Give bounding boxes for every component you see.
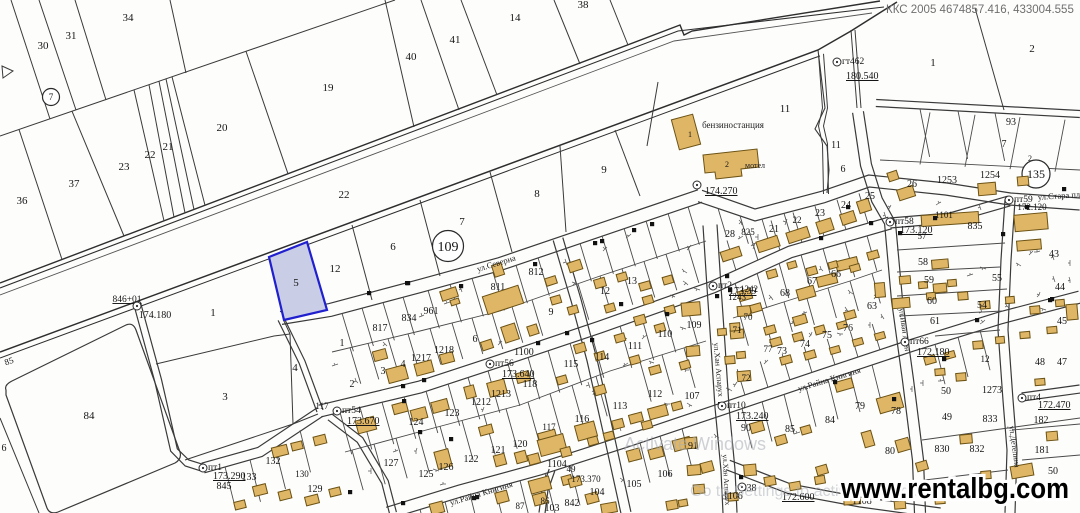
svg-text:4: 4 [401,359,406,370]
svg-text:25: 25 [865,191,875,202]
svg-text:113: 113 [613,401,628,412]
svg-text:22: 22 [793,215,802,225]
svg-text:30: 30 [38,40,50,52]
svg-text:58: 58 [918,257,928,268]
svg-text:130: 130 [295,469,309,479]
svg-text:1104: 1104 [547,459,567,470]
svg-text:116: 116 [575,414,590,425]
svg-text:22: 22 [339,189,350,201]
svg-text:173.240: 173.240 [736,411,769,422]
svg-text:86: 86 [541,496,551,506]
svg-text:79: 79 [855,401,865,412]
svg-text:1100: 1100 [514,347,534,358]
svg-text:109: 109 [687,320,702,331]
svg-text:26: 26 [907,179,917,190]
svg-text:961: 961 [424,306,439,317]
svg-text:54: 54 [977,300,987,311]
svg-text:84: 84 [825,415,835,426]
svg-text:842: 842 [565,498,580,509]
svg-text:67: 67 [807,276,817,287]
svg-text:173.640: 173.640 [502,369,535,380]
svg-text:817: 817 [373,323,388,334]
svg-text:41: 41 [450,34,461,46]
svg-text:104: 104 [590,487,605,498]
svg-text:77: 77 [764,344,774,354]
svg-text:70: 70 [744,312,754,322]
svg-text:9: 9 [549,307,554,318]
svg-text:830: 830 [935,444,950,455]
svg-text:13: 13 [627,276,637,287]
svg-text:73: 73 [777,346,787,357]
svg-text:90: 90 [741,423,751,434]
svg-text:835: 835 [968,221,983,232]
svg-text:6: 6 [841,164,846,175]
svg-text:4: 4 [292,362,298,374]
svg-text:пт10: пт10 [727,401,746,411]
svg-text:845: 845 [217,481,232,492]
svg-text:93: 93 [1006,117,1016,128]
svg-text:1212: 1212 [471,397,491,408]
svg-text:49: 49 [942,412,952,423]
svg-text:109: 109 [438,240,459,255]
svg-text:21: 21 [163,141,174,153]
svg-text:111: 111 [628,341,642,352]
svg-text:72: 72 [742,373,751,383]
svg-text:174.180: 174.180 [139,310,172,321]
svg-text:2: 2 [1028,154,1032,163]
svg-text:833: 833 [983,414,998,425]
svg-text:825: 825 [741,227,755,237]
svg-text:172.180: 172.180 [917,347,950,358]
svg-text:172.470: 172.470 [1038,400,1071,411]
svg-text:пт54: пт54 [342,406,361,416]
svg-text:пт66: пт66 [910,337,929,347]
svg-text:172.120: 172.120 [1017,202,1047,212]
svg-text:пт56: пт56 [495,359,514,369]
svg-text:63: 63 [867,301,877,312]
svg-text:75: 75 [822,330,832,341]
svg-text:48: 48 [1035,357,1045,368]
svg-text:115: 115 [564,359,579,370]
svg-text:40: 40 [406,51,418,63]
svg-text:12: 12 [600,286,610,297]
svg-text:118: 118 [523,379,538,390]
svg-text:1213: 1213 [491,389,511,400]
svg-text:19: 19 [323,82,335,94]
svg-text:45: 45 [1057,316,1067,327]
svg-text:12: 12 [981,354,990,364]
svg-text:1217: 1217 [411,353,431,364]
svg-text:78: 78 [891,406,901,417]
svg-text:125: 125 [419,469,434,480]
svg-text:7: 7 [459,216,465,228]
svg-text:44: 44 [1055,282,1065,293]
svg-text:114: 114 [595,352,610,363]
svg-text:84: 84 [84,410,96,422]
svg-text:47: 47 [1057,357,1067,368]
svg-text:1: 1 [340,338,345,349]
svg-text:71: 71 [733,325,742,335]
svg-text:1: 1 [210,307,216,319]
svg-text:6: 6 [473,334,478,345]
svg-text:173.120: 173.120 [900,225,933,236]
svg-text:1273: 1273 [982,385,1002,396]
svg-text:61: 61 [930,316,940,327]
svg-text:117: 117 [315,401,329,411]
svg-text:107: 107 [685,391,700,402]
svg-text:85: 85 [785,424,795,435]
svg-text:2: 2 [725,160,729,169]
svg-text:174.270: 174.270 [705,186,738,197]
svg-text:22: 22 [145,149,156,161]
svg-text:132: 132 [266,456,281,467]
svg-text:3: 3 [381,366,386,377]
svg-text:31: 31 [66,30,77,42]
svg-text:832: 832 [970,444,985,455]
svg-text:1: 1 [930,57,936,69]
svg-text:120: 120 [513,439,528,450]
svg-text:123: 123 [445,408,460,419]
svg-text:112: 112 [648,389,663,400]
svg-text:1218: 1218 [434,345,454,356]
svg-text:122: 122 [464,454,479,465]
svg-text:106: 106 [658,469,673,480]
svg-text:34: 34 [123,12,135,24]
svg-text:23: 23 [119,161,131,173]
svg-text:127: 127 [384,458,399,469]
svg-text:173.39: 173.39 [729,286,757,297]
svg-text:Activate Windows: Activate Windows [624,434,766,454]
svg-text:36: 36 [17,195,29,207]
svg-text:гт462: гт462 [842,57,865,67]
svg-text:80: 80 [885,446,895,457]
svg-text:38: 38 [578,0,590,11]
svg-text:110: 110 [658,329,673,340]
svg-text:6: 6 [2,443,7,454]
svg-text:49: 49 [567,464,577,474]
svg-text:24: 24 [841,200,851,211]
svg-text:76: 76 [843,323,853,334]
svg-text:173.670: 173.670 [347,416,380,427]
svg-text:135: 135 [1027,167,1045,181]
svg-text:ККС 2005 4674857.416, 433004.5: ККС 2005 4674857.416, 433004.555 [886,4,1074,16]
svg-text:7: 7 [49,92,54,102]
svg-text:11: 11 [831,140,841,151]
svg-text:117: 117 [542,422,556,432]
svg-text:8: 8 [534,188,540,200]
svg-text:180.540: 180.540 [846,71,879,82]
svg-text:1101: 1101 [935,210,953,220]
svg-text:20: 20 [217,122,229,134]
svg-text:124: 124 [409,417,424,428]
svg-text:1: 1 [688,130,692,139]
svg-text:11: 11 [780,103,791,115]
svg-text:12: 12 [330,263,341,275]
svg-text:28: 28 [725,229,735,240]
svg-text:105: 105 [627,479,642,490]
svg-text:74: 74 [800,339,810,350]
svg-text:www.rentalbg.com: www.rentalbg.com [840,473,1069,505]
svg-text:59: 59 [924,275,934,286]
svg-text:50: 50 [941,386,951,397]
svg-text:181: 181 [1035,445,1050,456]
svg-text:37: 37 [69,178,81,190]
svg-text:129: 129 [308,484,323,495]
svg-text:1254: 1254 [980,170,1000,181]
svg-text:43: 43 [1049,249,1059,260]
svg-text:14: 14 [510,12,522,24]
svg-text:60: 60 [927,296,937,307]
svg-text:2: 2 [1029,43,1035,55]
svg-text:мотел: мотел [745,161,765,170]
svg-text:812: 812 [529,267,544,278]
svg-text:9: 9 [601,164,607,176]
svg-text:5: 5 [293,277,299,289]
svg-text:126: 126 [439,462,454,473]
svg-text:6: 6 [390,241,396,253]
svg-text:87: 87 [516,501,526,511]
svg-text:66: 66 [831,269,841,280]
svg-text:811: 811 [491,282,506,293]
svg-text:121: 121 [491,445,506,456]
svg-text:182: 182 [1034,415,1049,426]
svg-text:834: 834 [402,313,417,324]
svg-text:3: 3 [222,391,228,403]
svg-text:23: 23 [815,208,825,219]
svg-text:55: 55 [992,273,1002,284]
svg-text:1253: 1253 [937,175,957,186]
svg-text:173.370: 173.370 [571,474,601,484]
svg-text:21: 21 [769,224,779,235]
svg-text:бензиностанция: бензиностанция [702,120,764,130]
svg-text:2: 2 [350,379,355,390]
svg-text:173.290: 173.290 [213,471,246,482]
svg-text:68: 68 [780,288,790,299]
